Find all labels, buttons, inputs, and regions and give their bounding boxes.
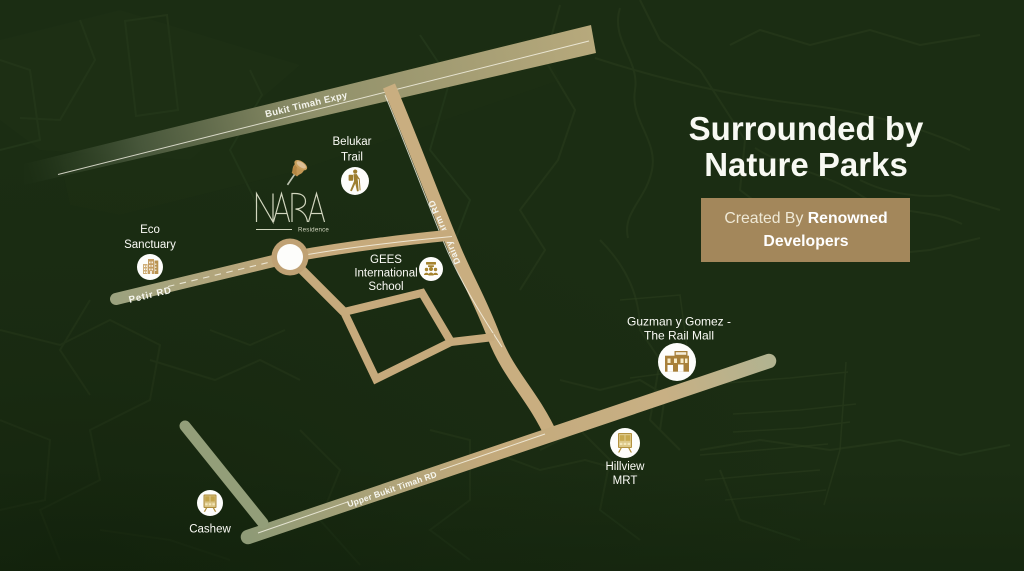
svg-text:Residence: Residence [298, 227, 329, 234]
svg-text:Belukar: Belukar [333, 136, 372, 148]
svg-text:Eco: Eco [140, 224, 160, 236]
svg-text:International: International [354, 268, 417, 280]
svg-text:Guzman y Gomez -: Guzman y Gomez - [627, 315, 731, 329]
svg-text:Nature Parks: Nature Parks [704, 146, 908, 183]
svg-text:Hillview: Hillview [606, 461, 646, 473]
svg-text:Surrounded by: Surrounded by [689, 110, 924, 147]
svg-text:School: School [368, 281, 403, 293]
svg-text:Trail: Trail [341, 152, 363, 164]
svg-text:Developers: Developers [763, 233, 848, 250]
svg-text:MRT: MRT [613, 475, 638, 487]
svg-text:The Rail Mall: The Rail Mall [644, 329, 714, 343]
svg-text:Created By Renowned: Created By Renowned [724, 210, 887, 227]
svg-text:Cashew: Cashew [189, 524, 231, 536]
svg-text:Sanctuary: Sanctuary [124, 239, 176, 251]
svg-text:GEES: GEES [370, 254, 402, 266]
